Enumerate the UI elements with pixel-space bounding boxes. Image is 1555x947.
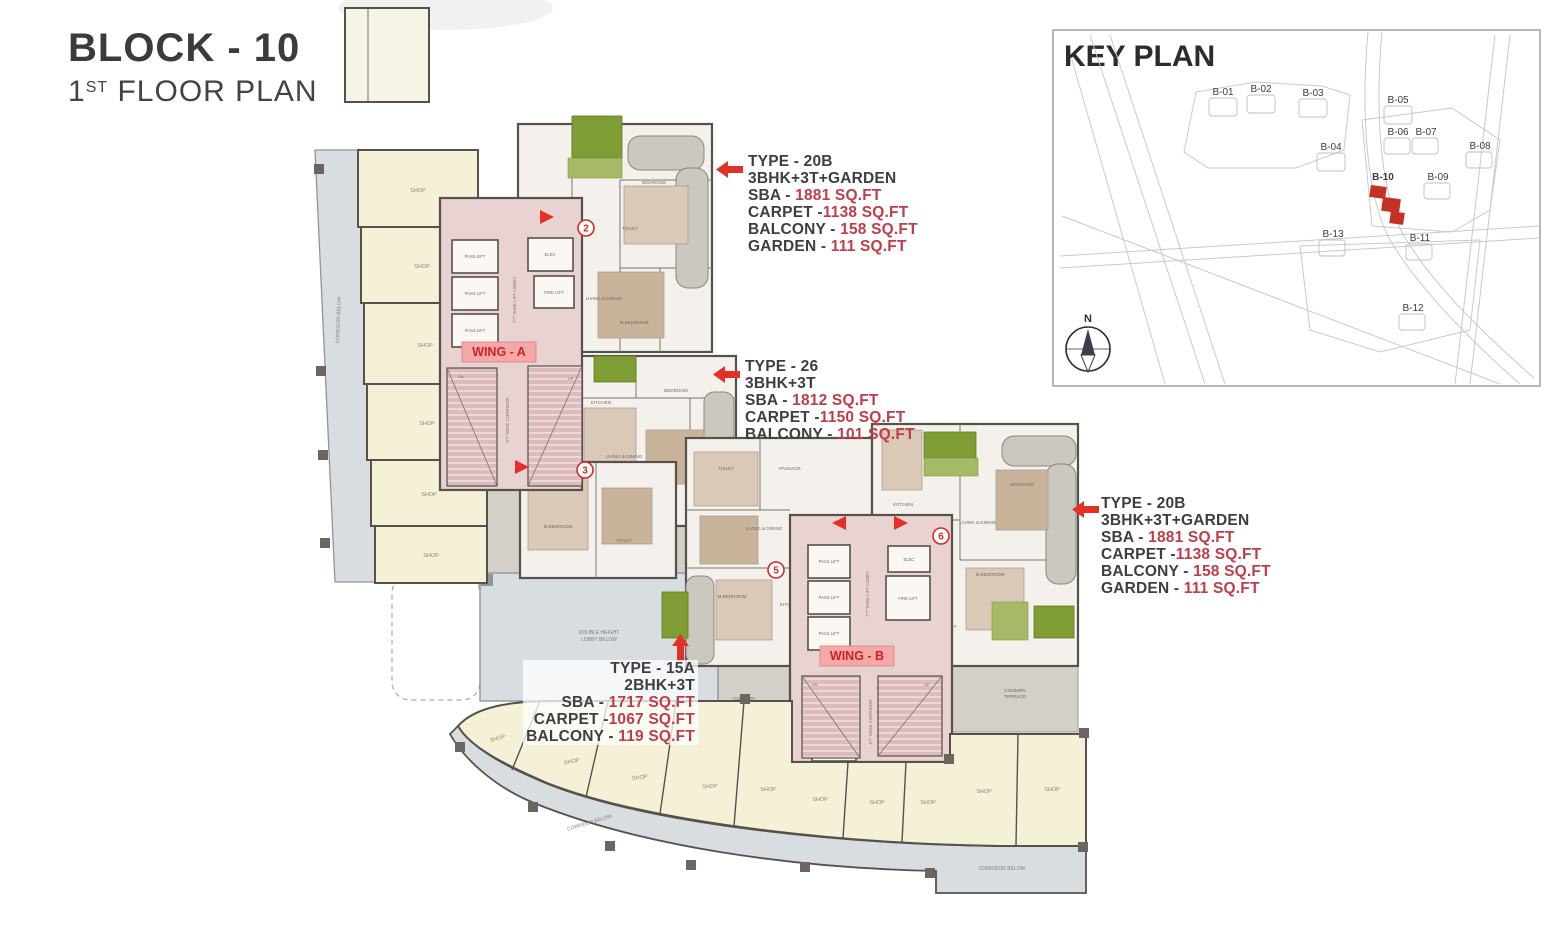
pass-lift-label: PASS LIFT: [819, 595, 840, 600]
room-label: LIVING & DINING: [960, 520, 997, 525]
pass-lift-label: PASS LIFT: [465, 254, 486, 259]
room-label: TOILET: [622, 226, 638, 231]
svg-text:6: 6: [938, 532, 944, 543]
shop-label: SHOP: [869, 800, 885, 806]
unit-type-label: TYPE - 20B: [748, 153, 918, 170]
wing-b-label: WING - B: [820, 646, 894, 666]
block-label: B-12: [1402, 303, 1424, 314]
floor-plan-svg: COMMON TERRACE COMMON TERRACE COMMON TER…: [0, 0, 1555, 947]
corridor-below-label: CORRIDOR BELOW: [979, 866, 1026, 872]
unit-type-label: TYPE - 15A: [526, 660, 695, 677]
unit-number-2: 2: [578, 220, 594, 236]
block-label: B-02: [1250, 84, 1272, 95]
room-label: M.BEDROOM: [544, 524, 573, 529]
unit-number-6: 6: [933, 528, 949, 544]
room-label: PASSAGE: [779, 466, 801, 471]
svg-text:5: 5: [773, 566, 779, 577]
key-plan-title: KEY PLAN: [1064, 40, 1215, 73]
shop-label: SHOP: [976, 789, 992, 795]
annotation-arrow-left-icon: [713, 366, 740, 388]
wing-a-core: 7'7" WIDE LIFT LOBBY 6'7" WIDE CORRIDOR …: [440, 198, 582, 490]
block-label: B-06: [1387, 127, 1409, 138]
room-label: BEDROOM: [664, 388, 688, 393]
svg-text:3: 3: [582, 466, 588, 477]
unit-area-line: CARPET -1150 SQ.FT: [745, 409, 915, 426]
annotation-type-26: TYPE - 26 3BHK+3T SBA - 1812 SQ.FT CARPE…: [745, 358, 915, 443]
room-label: TOILET: [718, 466, 734, 471]
stair-dn-label: DN: [458, 375, 464, 379]
svg-text:WING - A: WING - A: [472, 345, 526, 359]
svg-text:2: 2: [583, 224, 589, 235]
terrace-label: COMMON: [1004, 688, 1025, 693]
lift-lobby-label: 7'7" WIDE LIFT LOBBY: [865, 571, 870, 617]
room-label: LIVING & DINING: [746, 526, 783, 531]
room-label: M.BEDROOM: [976, 572, 1005, 577]
annotation-type-20b-top: TYPE - 20B 3BHK+3T+GARDEN SBA - 1881 SQ.…: [748, 153, 918, 255]
shop-label: SHOP: [812, 797, 828, 803]
pass-lift-label: PASS LIFT: [819, 559, 840, 564]
page: { "title": {"block": "BLOCK - 10", "floo…: [0, 0, 1555, 947]
wide-corridor-label: 6'7" WIDE CORRIDOR: [505, 397, 510, 442]
block-label: B-13: [1322, 229, 1344, 240]
svg-text:WING - B: WING - B: [830, 649, 884, 663]
annotation-arrow-left-icon: [716, 161, 743, 183]
pass-lift-label: PASS LIFT: [465, 328, 486, 333]
unit-area-line: CARPET -1067 SQ.FT: [526, 711, 695, 728]
annotation-arrow-left-icon: [1072, 501, 1099, 523]
unit-area-line: CARPET -1138 SQ.FT: [1101, 546, 1271, 563]
room-label: BEDROOM: [1010, 482, 1034, 487]
block-label: B-03: [1302, 88, 1324, 99]
terrace-label: TERRACE: [1004, 694, 1026, 699]
shop-label: SHOP: [419, 421, 435, 427]
shop-label: SHOP: [417, 343, 433, 349]
unit-area-line: GARDEN - 111 SQ.FT: [748, 238, 918, 255]
block-label: B-09: [1427, 172, 1449, 183]
shop-label: SHOP: [414, 264, 430, 270]
unit-config-label: 3BHK+3T: [745, 375, 915, 392]
block-label: B-01: [1212, 87, 1234, 98]
block-label: B-08: [1469, 141, 1491, 152]
room-label: LIVING & DINING: [586, 296, 623, 301]
pass-lift-label: PASS LIFT: [465, 291, 486, 296]
unit-area-line: BALCONY - 119 SQ.FT: [526, 728, 695, 745]
block-label: B-07: [1415, 127, 1437, 138]
stair-dn-label: DN: [812, 683, 818, 687]
fire-lift-label: FIRE LIFT: [544, 290, 564, 295]
unit-config-label: 3BHK+3T+GARDEN: [748, 170, 918, 187]
wing-b-core: 7'7" WIDE LIFT LOBBY 6'7" WIDE CORRIDOR …: [790, 515, 952, 762]
elec-label: ELEC: [904, 557, 915, 562]
shop-label: SHOP: [920, 800, 936, 806]
compass-n-label: N: [1084, 313, 1092, 325]
fire-lift-label: FIRE LIFT: [898, 596, 918, 601]
wing-a-label: WING - A: [462, 342, 536, 362]
common-terrace-c: COMMON TERRACE: [952, 660, 1078, 732]
room-label: BEDROOM: [642, 180, 666, 185]
shop-label: SHOP: [702, 784, 718, 791]
pass-lift-label: PASS LIFT: [819, 631, 840, 636]
annotation-type-20b-right: TYPE - 20B 3BHK+3T+GARDEN SBA - 1881 SQ.…: [1101, 495, 1271, 597]
unit-area-line: GARDEN - 111 SQ.FT: [1101, 580, 1271, 597]
block-label: B-11: [1410, 233, 1431, 244]
room-label: KITCHEN: [893, 502, 913, 507]
key-plan: KEY PLAN B-01 B-02 B-03 B-04 B-05: [1053, 30, 1540, 386]
unit-config-label: 2BHK+3T: [526, 677, 695, 694]
unit-config-label: 3BHK+3T+GARDEN: [1101, 512, 1271, 529]
unit-area-line: SBA - 1812 SQ.FT: [745, 392, 915, 409]
annotation-type-15a: TYPE - 15A 2BHK+3T SBA - 1717 SQ.FT CARP…: [523, 660, 698, 745]
unit-area-line: BALCONY - 158 SQ.FT: [748, 221, 918, 238]
shop-label: SHOP: [410, 188, 426, 194]
room-label: M.BEDROOM: [718, 594, 747, 599]
unit-area-line: SBA - 1717 SQ.FT: [526, 694, 695, 711]
lobby-below-label: LOBBY BELOW: [581, 637, 617, 643]
shop-label: SHOP: [423, 553, 439, 559]
unit-type-label: TYPE - 26: [745, 358, 915, 375]
shop-label: SHOP: [1044, 787, 1060, 793]
unit-area-line: SBA - 1881 SQ.FT: [748, 187, 918, 204]
unit-type-label: TYPE - 20B: [1101, 495, 1271, 512]
unit-area-line: CARPET -1138 SQ.FT: [748, 204, 918, 221]
unit-number-5: 5: [768, 562, 784, 578]
unit-area-line: BALCONY - 101 SQ.FT: [745, 426, 915, 443]
room-label: LIVING & DINING: [606, 454, 643, 459]
shop-label: SHOP: [421, 492, 437, 498]
block-label-highlighted: B-10: [1372, 172, 1394, 183]
double-height-label: DOUBLE HEIGHT: [579, 630, 620, 636]
stair-up-label: UP: [568, 377, 574, 381]
elec-label: ELEC: [545, 252, 556, 257]
block-label: B-05: [1387, 95, 1409, 106]
wide-corridor-label: 6'7" WIDE CORRIDOR: [868, 699, 873, 744]
block-label: B-04: [1320, 142, 1342, 153]
room-label: M.BEDROOM: [620, 320, 649, 325]
lift-lobby-label: 7'7" WIDE LIFT LOBBY: [512, 277, 517, 323]
unit-area-line: BALCONY - 158 SQ.FT: [1101, 563, 1271, 580]
shop-label: SHOP: [760, 787, 776, 793]
unit-area-line: SBA - 1881 SQ.FT: [1101, 529, 1271, 546]
room-label: KITCHEN: [591, 400, 611, 405]
room-label: TOILET: [616, 538, 632, 543]
unit-number-3: 3: [577, 462, 593, 478]
stair-up-label: UP: [924, 683, 930, 687]
